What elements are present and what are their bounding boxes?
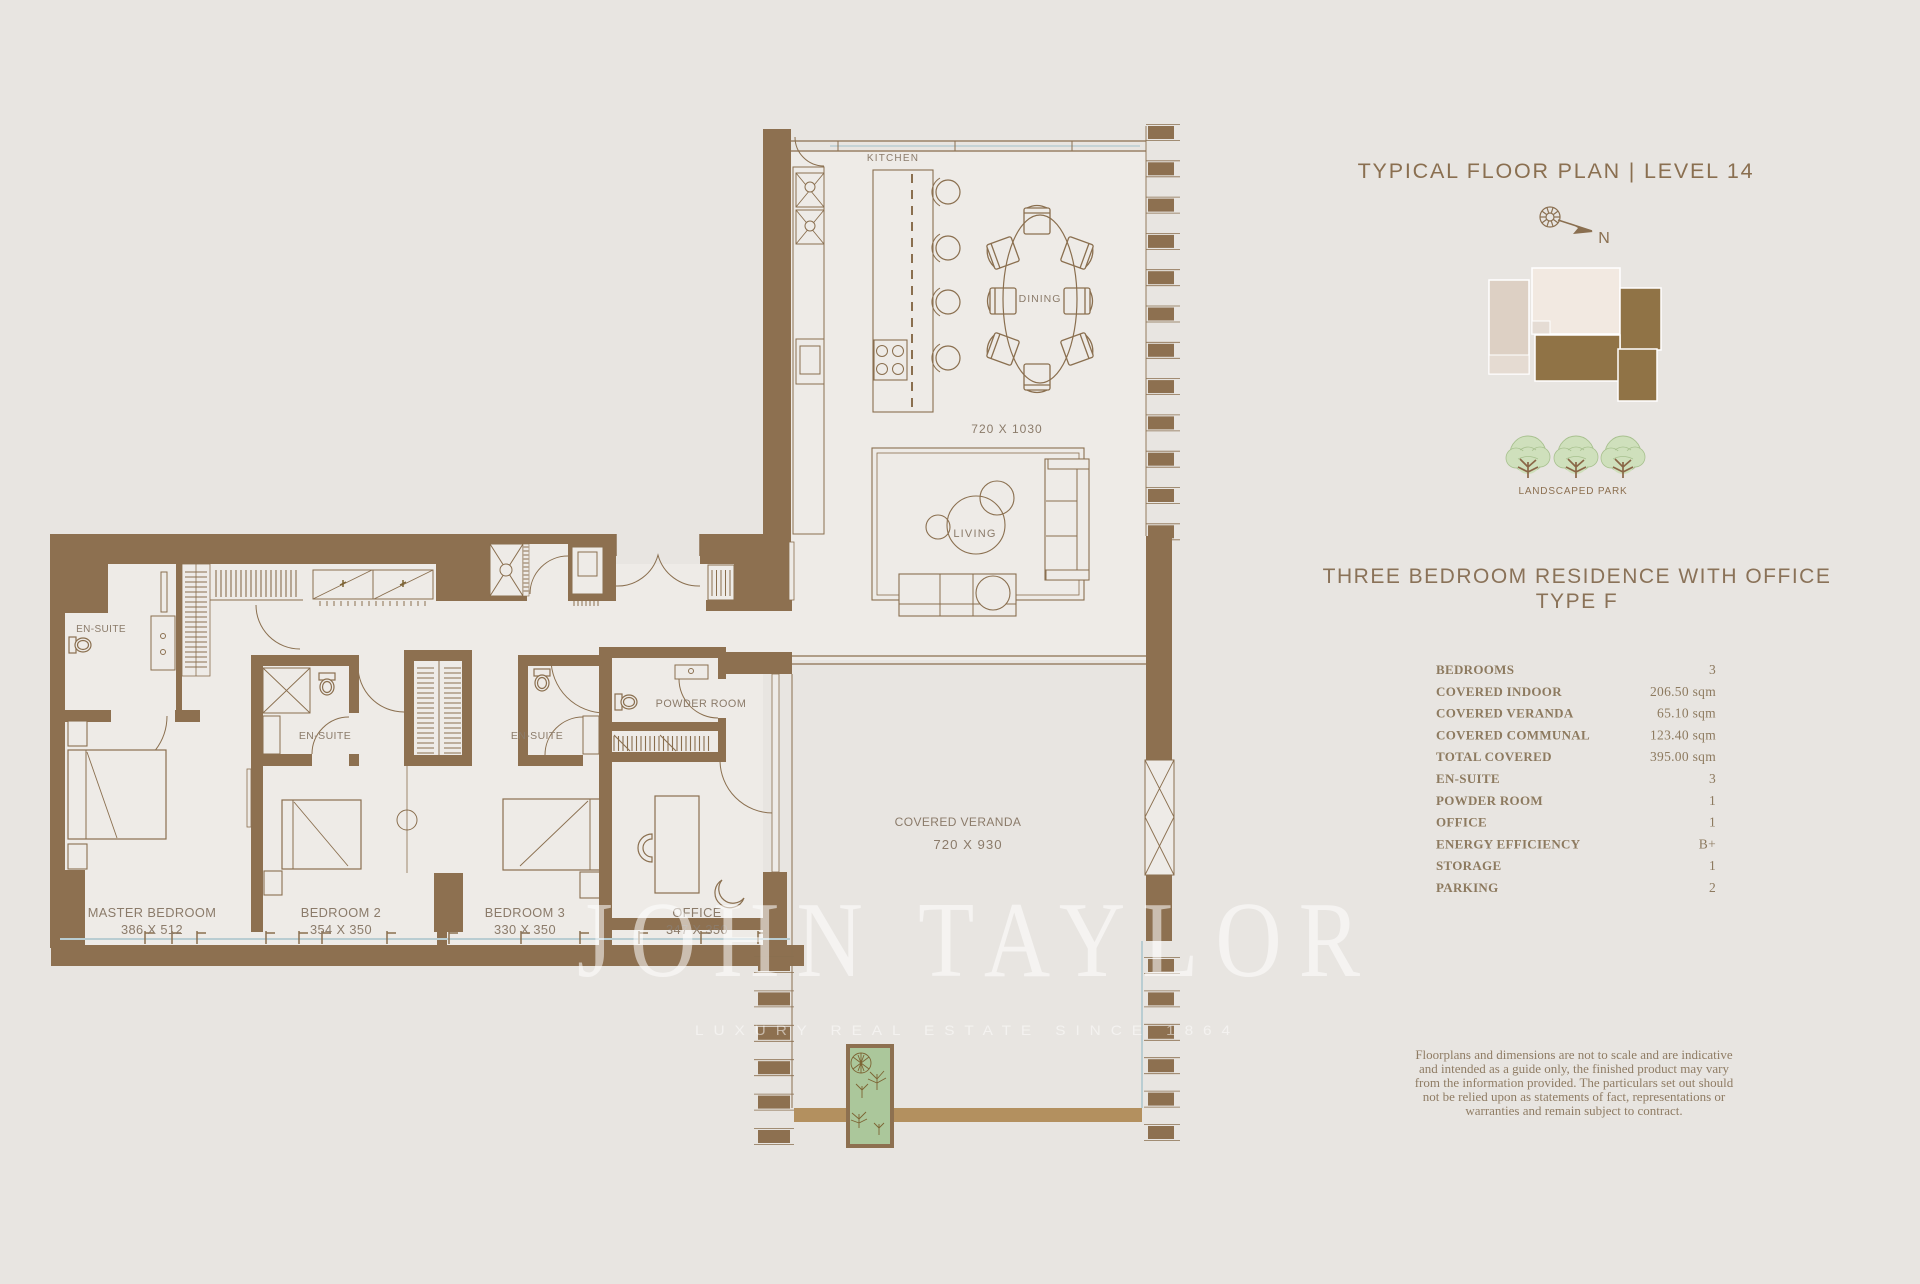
- svg-text:and intended as a guide only,: and intended as a guide only, the finish…: [1419, 1061, 1729, 1076]
- svg-text:COVERED VERANDA: COVERED VERANDA: [895, 815, 1022, 829]
- svg-text:POWDER ROOM: POWDER ROOM: [656, 698, 747, 710]
- svg-text:OFFICE: OFFICE: [1436, 815, 1487, 830]
- svg-text:2: 2: [1709, 880, 1716, 895]
- svg-text:COVERED COMMUNAL: COVERED COMMUNAL: [1436, 727, 1590, 742]
- svg-text:386 X 512: 386 X 512: [121, 922, 183, 937]
- svg-text:TYPICAL FLOOR PLAN | LEVEL 14: TYPICAL FLOOR PLAN | LEVEL 14: [1358, 159, 1755, 183]
- svg-text:206.50 sqm: 206.50 sqm: [1650, 684, 1716, 699]
- svg-text:THREE BEDROOM RESIDENCE WITH O: THREE BEDROOM RESIDENCE WITH OFFICE: [1323, 565, 1832, 588]
- svg-text:POWDER ROOM: POWDER ROOM: [1436, 793, 1543, 808]
- svg-text:not be relied upon as statemen: not be relied upon as statements of fact…: [1423, 1089, 1726, 1104]
- svg-text:STORAGE: STORAGE: [1436, 858, 1501, 873]
- svg-text:354 X 350: 354 X 350: [310, 922, 372, 937]
- svg-text:EN-SUITE: EN-SUITE: [1436, 771, 1500, 786]
- svg-text:EN-SUITE: EN-SUITE: [76, 624, 126, 635]
- svg-text:BEDROOM 3: BEDROOM 3: [485, 905, 565, 920]
- svg-text:KITCHEN: KITCHEN: [867, 153, 919, 164]
- svg-text:EN-SUITE: EN-SUITE: [511, 730, 563, 742]
- svg-text:TOTAL COVERED: TOTAL COVERED: [1436, 749, 1552, 764]
- svg-text:720 X 1030: 720 X 1030: [971, 422, 1042, 436]
- svg-text:BEDROOM 2: BEDROOM 2: [301, 905, 381, 920]
- svg-text:720 X 930: 720 X 930: [933, 837, 1002, 852]
- svg-text:123.40 sqm: 123.40 sqm: [1650, 727, 1716, 742]
- svg-text:B+: B+: [1699, 836, 1716, 851]
- svg-text:ENERGY EFFICIENCY: ENERGY EFFICIENCY: [1436, 836, 1581, 851]
- svg-text:3: 3: [1709, 662, 1716, 677]
- svg-text:3: 3: [1709, 771, 1716, 786]
- svg-text:BEDROOMS: BEDROOMS: [1436, 662, 1514, 677]
- svg-text:warranties and remain subject: warranties and remain subject to contrac…: [1465, 1103, 1682, 1118]
- svg-text:MASTER BEDROOM: MASTER BEDROOM: [88, 905, 217, 920]
- svg-text:COVERED VERANDA: COVERED VERANDA: [1436, 706, 1574, 721]
- svg-text:LANDSCAPED PARK: LANDSCAPED PARK: [1518, 486, 1627, 497]
- svg-text:1: 1: [1709, 793, 1716, 808]
- svg-text:JOHN TAYLOR: JOHN TAYLOR: [577, 881, 1377, 1000]
- svg-text:COVERED INDOOR: COVERED INDOOR: [1436, 684, 1562, 699]
- svg-text:LIVING: LIVING: [953, 528, 996, 540]
- svg-text:from the information provided.: from the information provided. The parti…: [1415, 1075, 1734, 1090]
- svg-text:DINING: DINING: [1019, 293, 1062, 305]
- svg-text:EN-SUITE: EN-SUITE: [299, 730, 351, 742]
- svg-text:395.00 sqm: 395.00 sqm: [1650, 749, 1716, 764]
- svg-text:LUXURY REAL ESTATE SINCE 1864: LUXURY REAL ESTATE SINCE 1864: [695, 1022, 1240, 1038]
- svg-text:PARKING: PARKING: [1436, 880, 1499, 895]
- svg-text:1: 1: [1709, 815, 1716, 830]
- svg-text:N: N: [1598, 230, 1610, 247]
- svg-text:TYPE F: TYPE F: [1536, 590, 1619, 613]
- svg-text:1: 1: [1709, 858, 1716, 873]
- svg-text:Floorplans and dimensions are: Floorplans and dimensions are not to sca…: [1415, 1047, 1733, 1062]
- svg-text:330 X 350: 330 X 350: [494, 922, 556, 937]
- svg-text:65.10 sqm: 65.10 sqm: [1657, 706, 1716, 721]
